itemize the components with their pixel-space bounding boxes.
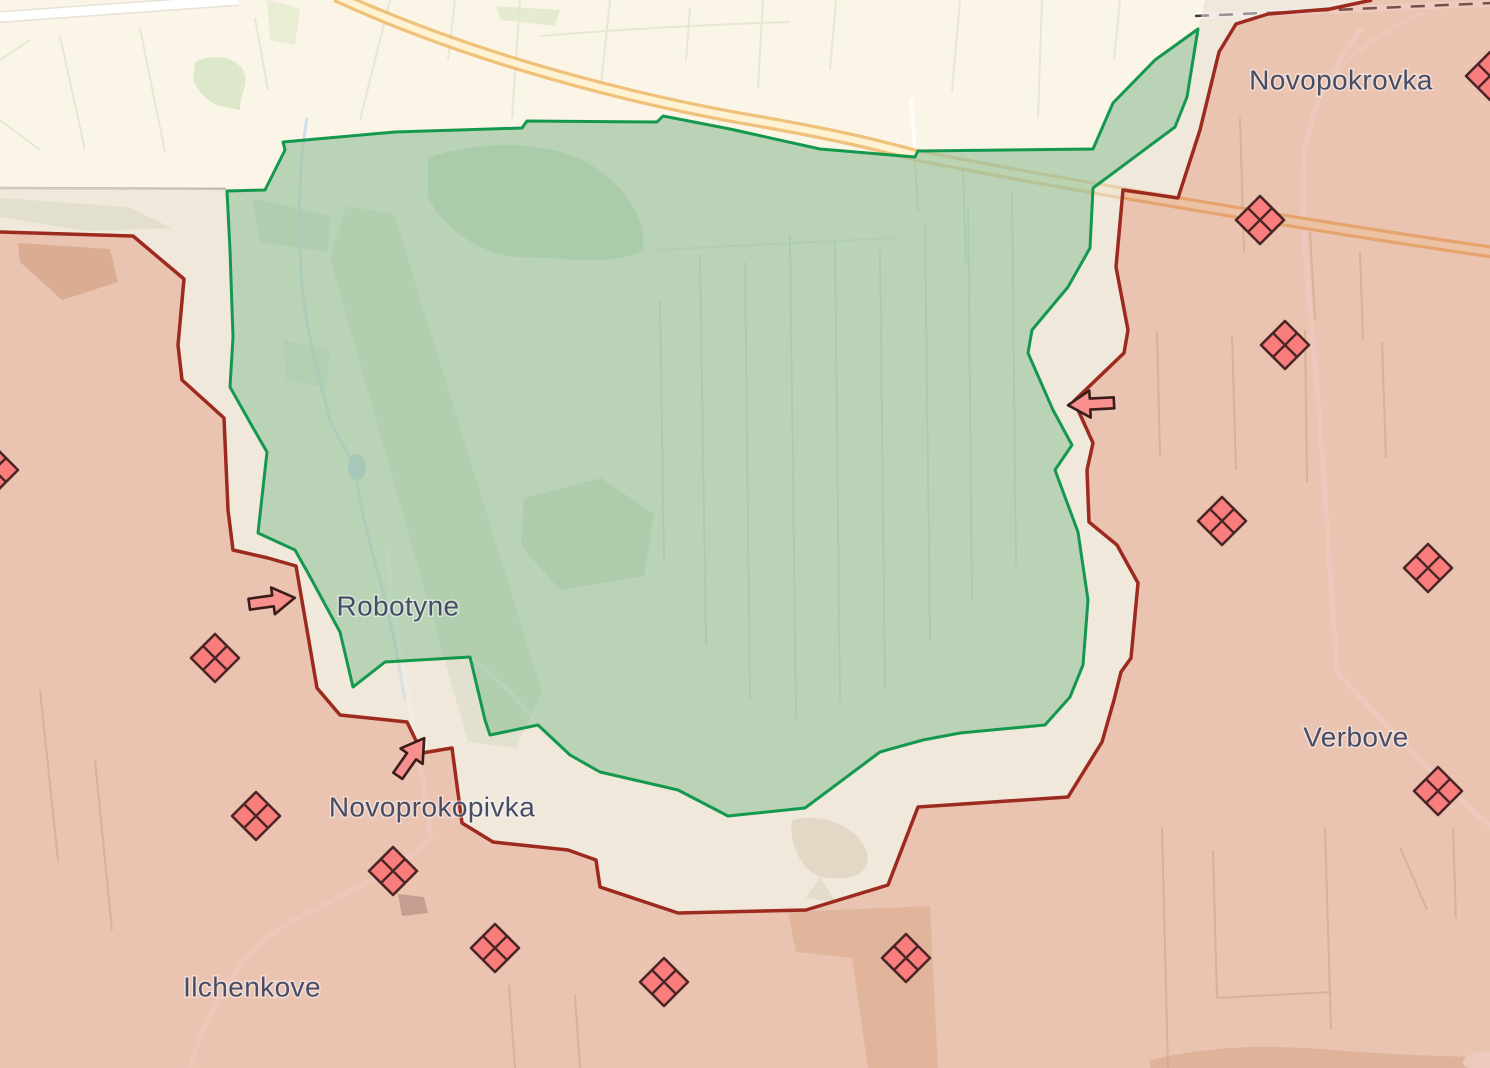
map-canvas[interactable]: Novopokrovka Robotyne Novoprokopivka Ver…: [0, 0, 1490, 1068]
map-viewport[interactable]: Novopokrovka Robotyne Novoprokopivka Ver…: [0, 0, 1490, 1068]
place-label-robotyne: Robotyne: [336, 590, 459, 621]
place-label-novopokrovka: Novopokrovka: [1249, 64, 1433, 95]
place-label-novoprokopivka: Novoprokopivka: [329, 791, 535, 822]
place-label-verbove: Verbove: [1303, 721, 1409, 752]
place-label-ilchenkove: Ilchenkove: [183, 971, 321, 1002]
